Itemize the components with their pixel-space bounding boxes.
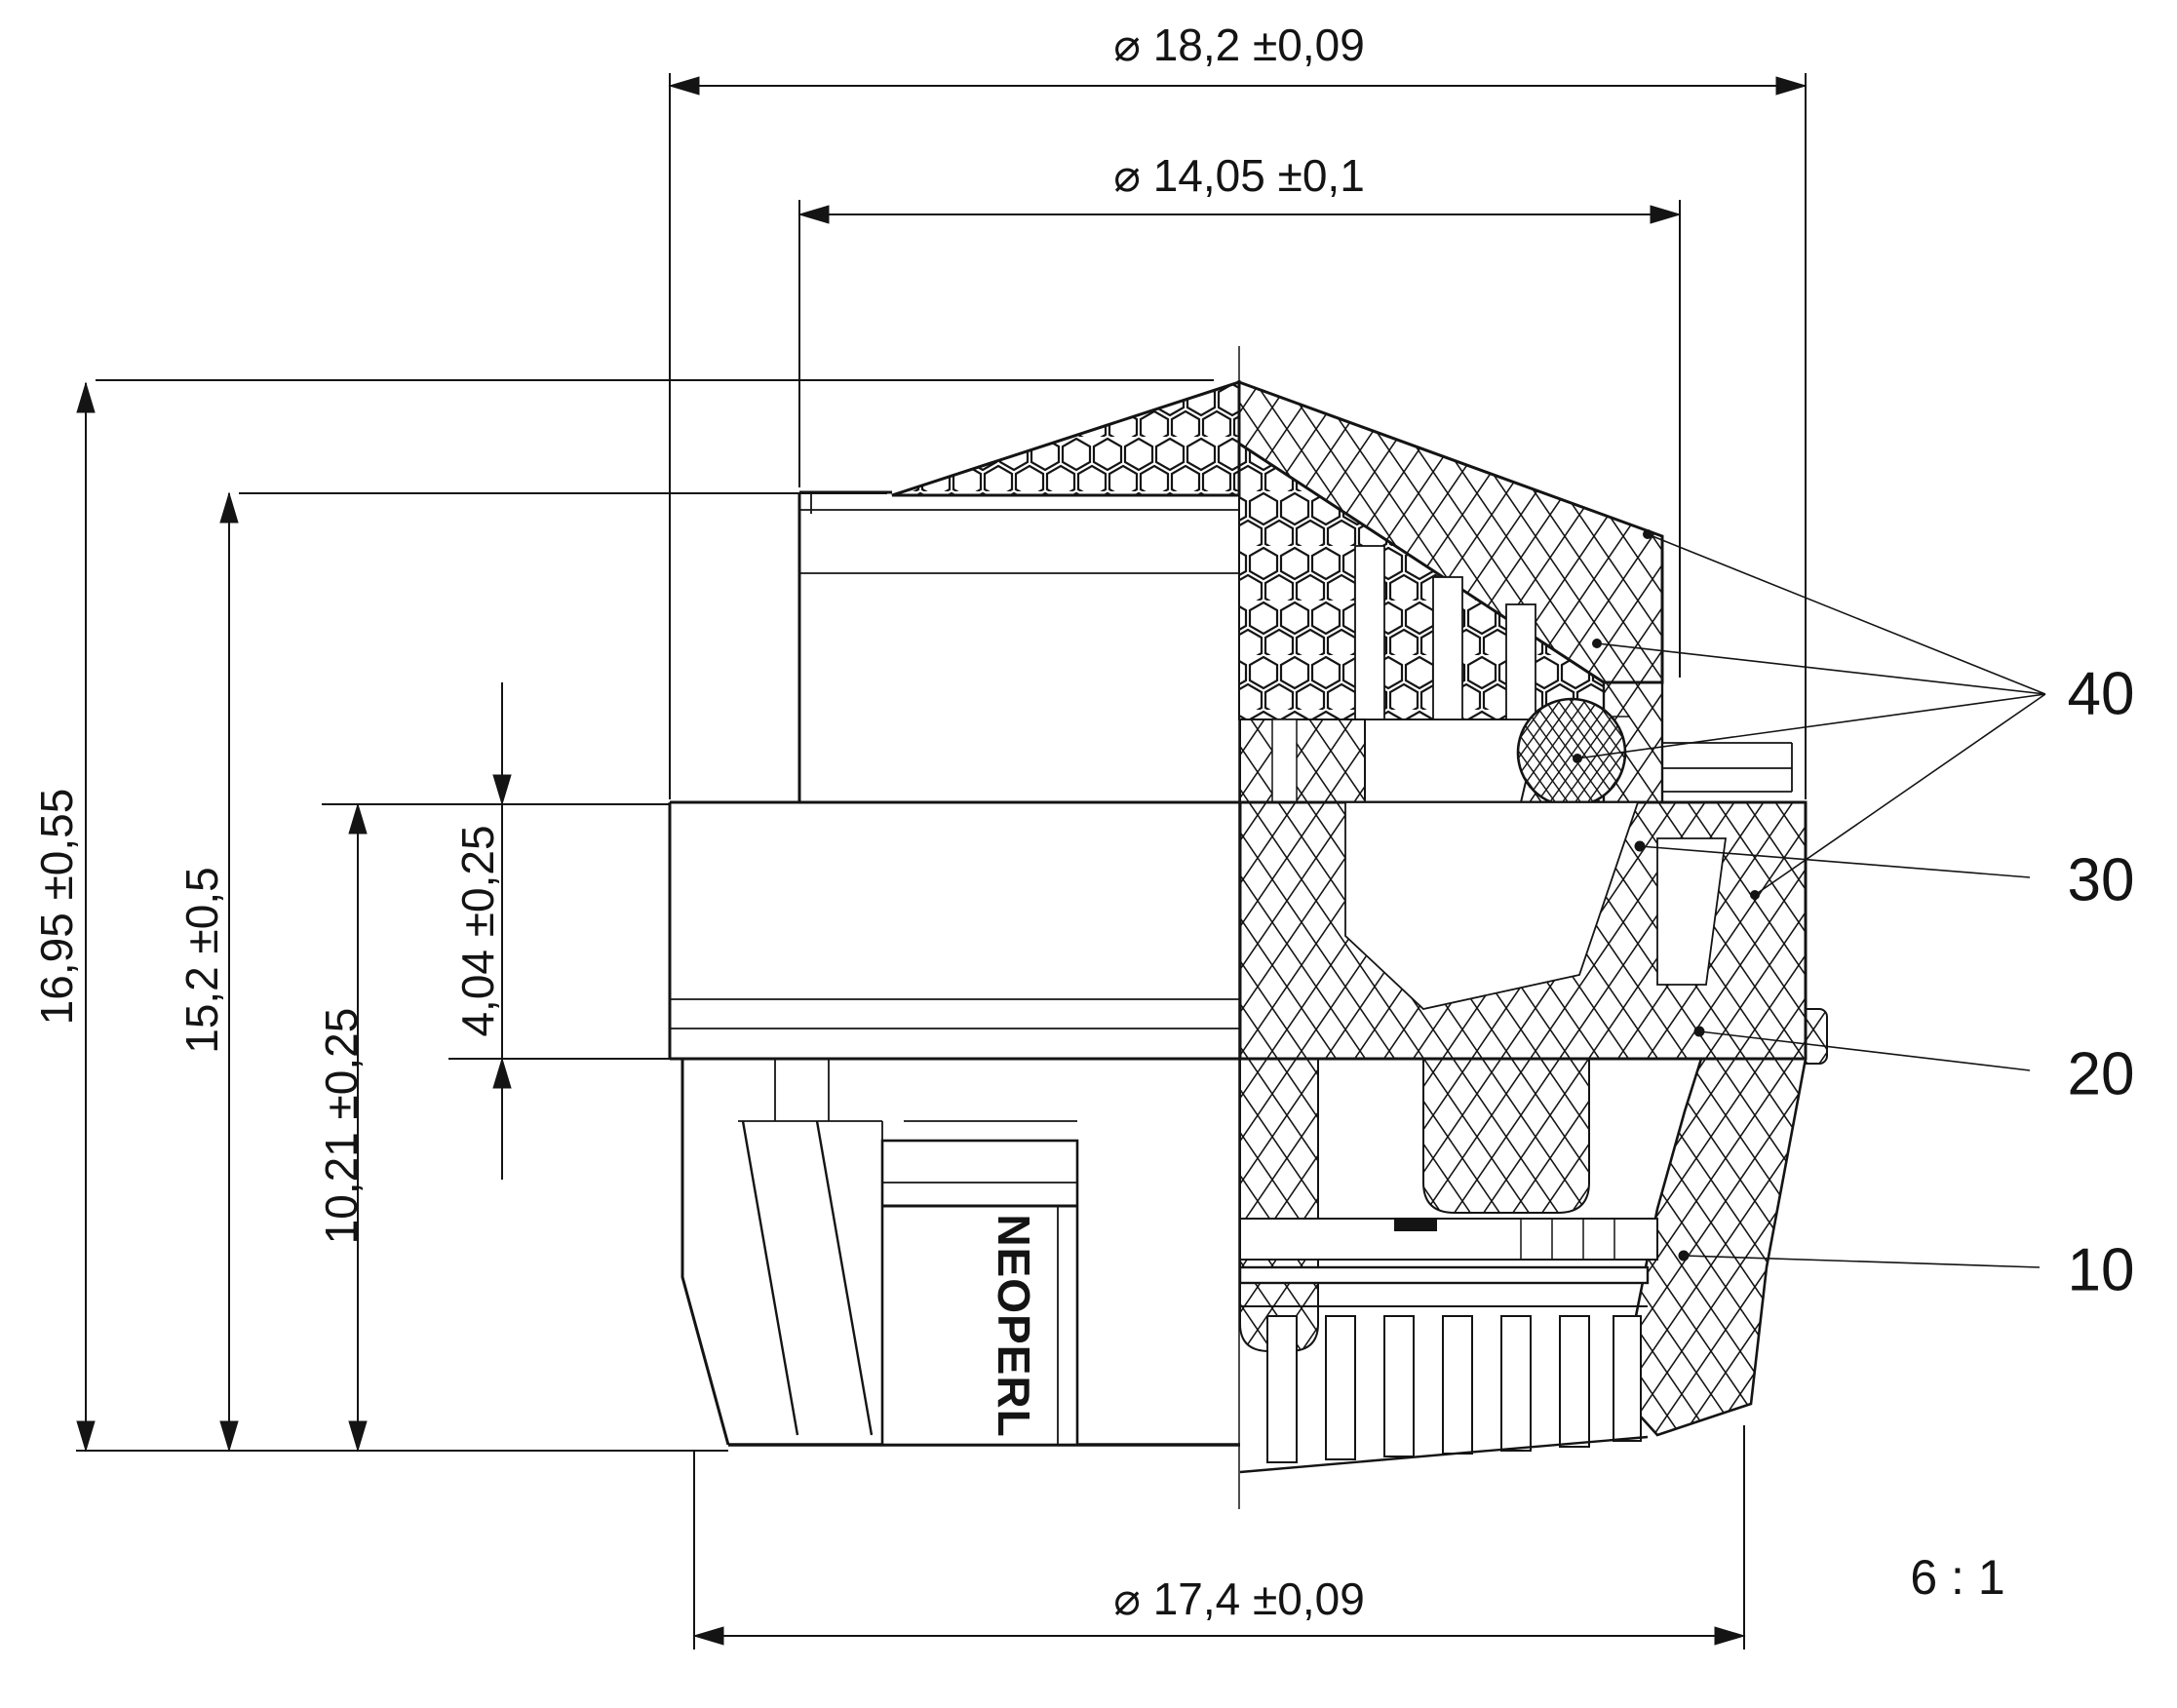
section-right-half — [1240, 682, 1827, 1472]
dim-outer-diameter-top: ⌀ 18,2 ±0,09 — [1113, 19, 1365, 70]
scale-label: 6 : 1 — [1910, 1550, 2004, 1605]
dim-height-upper: 15,2 ±0,5 — [176, 867, 227, 1054]
dim-outer-diameter-bottom: ⌀ 17,4 ±0,09 — [1113, 1573, 1365, 1624]
aerator-section-drawing: NEOPERL — [0, 0, 2177, 1708]
mesh-dome-left — [892, 382, 1239, 495]
diffuser-section — [1423, 1059, 1589, 1213]
callout-item-30: 30 — [2068, 847, 2135, 914]
dim-height-flange: 4,04 ±0,25 — [452, 825, 503, 1036]
callout-item-40: 40 — [2068, 661, 2135, 728]
dim-inner-diameter-top: ⌀ 14,05 ±0,1 — [1113, 150, 1365, 201]
brand-label: NEOPERL — [989, 1214, 1039, 1437]
mesh-rib — [1355, 546, 1384, 719]
grip-ring-bump — [1806, 1009, 1827, 1064]
mesh-rib — [1506, 604, 1536, 719]
mesh-rib — [1433, 577, 1462, 719]
mesh-dome — [892, 382, 1662, 719]
dim-height-lower: 10,21 ±0,25 — [316, 1008, 367, 1245]
callout-item-20: 20 — [2068, 1041, 2135, 1108]
outlet-grate — [1267, 1316, 1641, 1462]
brand-panel — [882, 1141, 1077, 1445]
o-ring-section — [1518, 699, 1625, 806]
screen-band — [1240, 1267, 1648, 1283]
perforated-plate — [1240, 1219, 1657, 1260]
retainer-steps — [1662, 743, 1792, 792]
dim-height-total: 16,95 ±0,55 — [31, 789, 82, 1026]
inner-cartridge-wall-section — [1240, 719, 1365, 802]
technical-drawing-canvas: NEOPERL — [0, 0, 2177, 1708]
callout-item-10: 10 — [2068, 1237, 2135, 1304]
